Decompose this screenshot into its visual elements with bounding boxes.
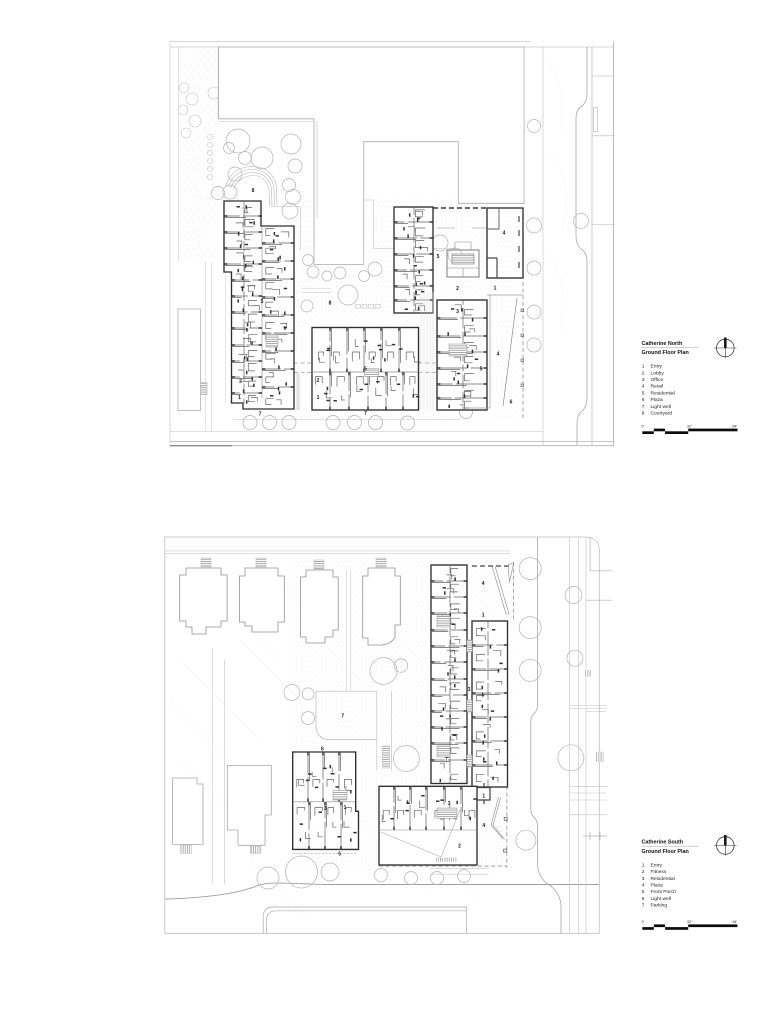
svg-text:64': 64' <box>733 920 738 924</box>
svg-text:Catherine North: Catherine North <box>642 341 683 347</box>
svg-text:1: 1 <box>482 612 485 618</box>
svg-text:Entry: Entry <box>651 364 663 370</box>
svg-text:Entry: Entry <box>651 862 663 868</box>
svg-text:3: 3 <box>642 377 645 383</box>
svg-text:7: 7 <box>642 903 645 909</box>
svg-text:32': 32' <box>687 920 692 924</box>
svg-text:7: 7 <box>341 714 344 720</box>
svg-text:4: 4 <box>642 384 645 390</box>
svg-text:6: 6 <box>642 397 645 403</box>
svg-text:Retail: Retail <box>651 384 664 390</box>
svg-text:1: 1 <box>238 395 241 401</box>
svg-text:Fitness: Fitness <box>651 869 667 875</box>
svg-text:5: 5 <box>437 254 440 260</box>
svg-text:3: 3 <box>324 806 327 812</box>
svg-text:Plaza: Plaza <box>651 883 664 889</box>
svg-text:32': 32' <box>687 424 692 428</box>
svg-text:4: 4 <box>482 823 485 829</box>
svg-text:5: 5 <box>338 852 341 858</box>
svg-text:Plaza: Plaza <box>651 397 664 403</box>
svg-text:1: 1 <box>642 364 645 370</box>
svg-text:6: 6 <box>642 896 645 902</box>
svg-text:2: 2 <box>642 869 645 875</box>
svg-text:Ground Floor Plan: Ground Floor Plan <box>642 350 689 356</box>
svg-text:Lobby: Lobby <box>651 370 665 376</box>
svg-text:3: 3 <box>456 309 459 315</box>
svg-text:Light well: Light well <box>651 404 671 410</box>
svg-text:Catherine South: Catherine South <box>642 840 684 846</box>
svg-text:64': 64' <box>733 424 738 428</box>
svg-text:5: 5 <box>642 889 645 895</box>
svg-text:3: 3 <box>448 801 451 807</box>
svg-text:5: 5 <box>642 390 645 396</box>
svg-text:8: 8 <box>252 188 255 194</box>
svg-text:Light well: Light well <box>651 896 671 902</box>
svg-text:2: 2 <box>456 286 459 292</box>
svg-text:5: 5 <box>364 367 367 373</box>
svg-text:7: 7 <box>364 411 367 417</box>
svg-text:2: 2 <box>317 378 320 384</box>
svg-text:6: 6 <box>510 400 513 406</box>
svg-text:8: 8 <box>329 301 332 307</box>
svg-text:2: 2 <box>458 843 461 849</box>
svg-text:7: 7 <box>642 404 645 410</box>
svg-text:Ground Floor Plan: Ground Floor Plan <box>642 849 689 855</box>
svg-text:1: 1 <box>344 805 347 811</box>
svg-text:4: 4 <box>482 581 485 587</box>
svg-text:0': 0' <box>642 424 645 428</box>
svg-text:1: 1 <box>642 862 645 868</box>
svg-text:Residential: Residential <box>651 876 675 882</box>
svg-text:Office: Office <box>651 377 664 383</box>
svg-text:0': 0' <box>642 920 645 924</box>
svg-text:2: 2 <box>239 379 242 385</box>
svg-text:6: 6 <box>321 746 324 752</box>
svg-text:4: 4 <box>497 352 500 358</box>
svg-text:4: 4 <box>503 231 506 237</box>
svg-text:Front Porch: Front Porch <box>651 889 677 895</box>
svg-text:1: 1 <box>317 395 320 401</box>
svg-text:3: 3 <box>468 687 471 693</box>
svg-text:2: 2 <box>642 370 645 376</box>
svg-text:Residential: Residential <box>651 390 675 396</box>
svg-text:5: 5 <box>261 299 264 305</box>
svg-text:8: 8 <box>642 411 645 417</box>
svg-text:3: 3 <box>642 876 645 882</box>
svg-text:Courtyard: Courtyard <box>651 411 673 417</box>
svg-text:Parking: Parking <box>651 903 668 909</box>
svg-text:1: 1 <box>482 794 485 800</box>
svg-text:7: 7 <box>259 412 262 418</box>
svg-text:4: 4 <box>642 883 645 889</box>
svg-text:1: 1 <box>494 286 497 292</box>
svg-text:5: 5 <box>480 367 483 373</box>
